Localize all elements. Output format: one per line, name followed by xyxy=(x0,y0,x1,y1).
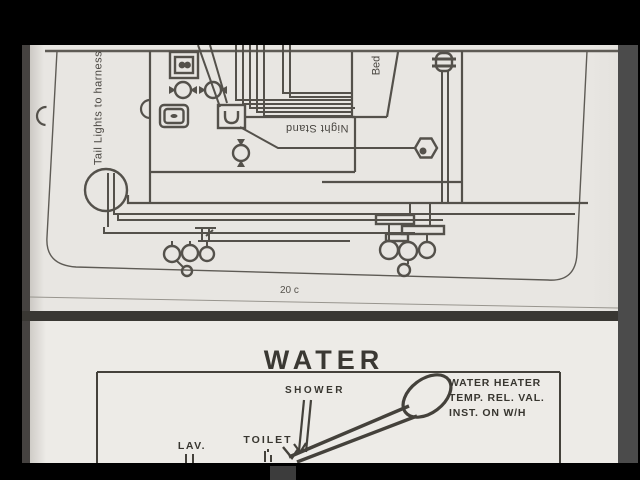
clearance-lights-right xyxy=(376,215,444,276)
page-left-shadow xyxy=(22,45,30,463)
video-frame: Tail Lights to harness Bed Night Stand 2… xyxy=(0,0,640,480)
toilet-label: TOILET xyxy=(218,434,318,446)
tail-lights-label: Tail Lights to harness xyxy=(93,51,107,166)
toilet-symbol xyxy=(265,449,271,462)
water-diagram-page: WATER SHOWER LAV. TOILET WATER HEATER TE… xyxy=(30,321,618,463)
page-right-shadow xyxy=(618,45,638,463)
outlet-symbol xyxy=(170,52,198,78)
plug-connector-symbol xyxy=(432,53,456,71)
water-heater-note-line3: INST. ON W/H xyxy=(449,406,545,421)
wiring-diagram-linework xyxy=(30,45,618,311)
pipe-arrowhead xyxy=(283,447,298,458)
wiring-diagram-page: Tail Lights to harness Bed Night Stand 2… xyxy=(30,45,618,311)
junction-box-symbol xyxy=(218,105,245,128)
bed-label: Bed xyxy=(371,49,384,83)
ceiling-light-icon-1 xyxy=(169,82,197,98)
shower-label: SHOWER xyxy=(265,385,365,396)
water-title: WATER xyxy=(30,345,618,376)
clearance-lights-left xyxy=(164,228,216,276)
hex-connector-symbol xyxy=(415,139,437,158)
page-number: 20 c xyxy=(280,285,299,296)
diagram-border xyxy=(30,51,618,308)
switch-symbol xyxy=(160,105,188,127)
water-heater-note-line1: WATER HEATER xyxy=(449,376,545,391)
water-heater-note: WATER HEATER TEMP. REL. VAL. INST. ON W/… xyxy=(449,376,545,421)
tail-light-circle xyxy=(85,169,127,211)
ceiling-light-icon-3 xyxy=(233,139,249,167)
night-stand-label: Night Stand xyxy=(271,121,363,134)
video-control-notch xyxy=(270,466,296,480)
lav-symbol xyxy=(186,454,193,463)
page-divider-shadow xyxy=(22,311,618,321)
water-heater-note-line2: TEMP. REL. VAL. xyxy=(449,391,545,406)
